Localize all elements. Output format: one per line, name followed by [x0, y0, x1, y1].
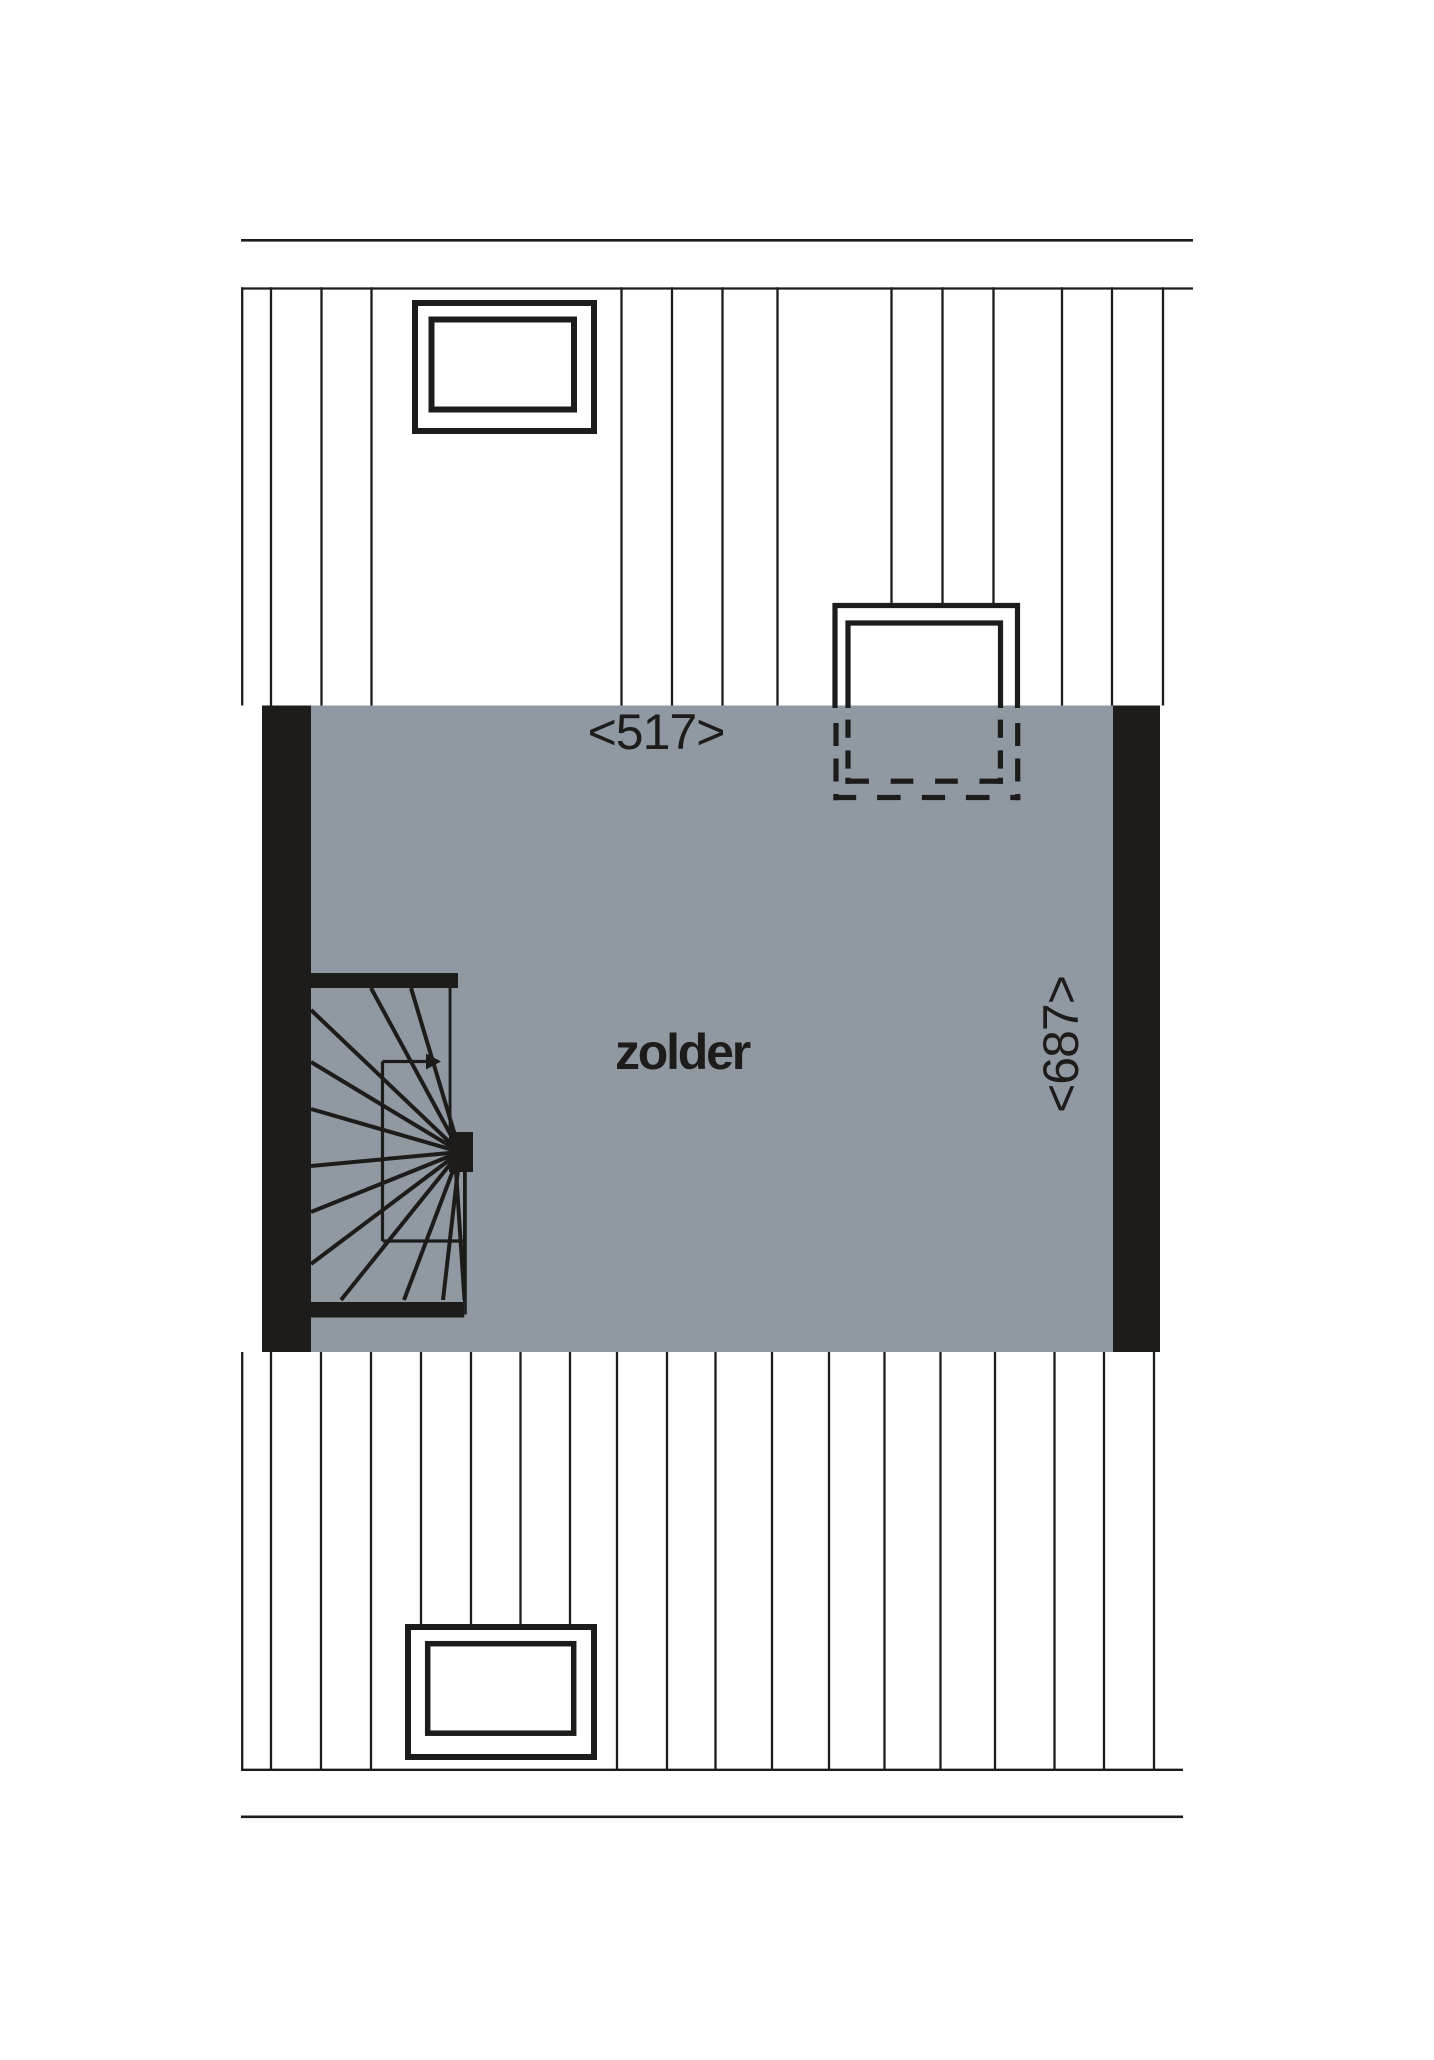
- svg-text:<517>: <517>: [588, 704, 725, 760]
- svg-text:<687>: <687>: [1033, 976, 1089, 1113]
- svg-text:zolder: zolder: [615, 1024, 751, 1080]
